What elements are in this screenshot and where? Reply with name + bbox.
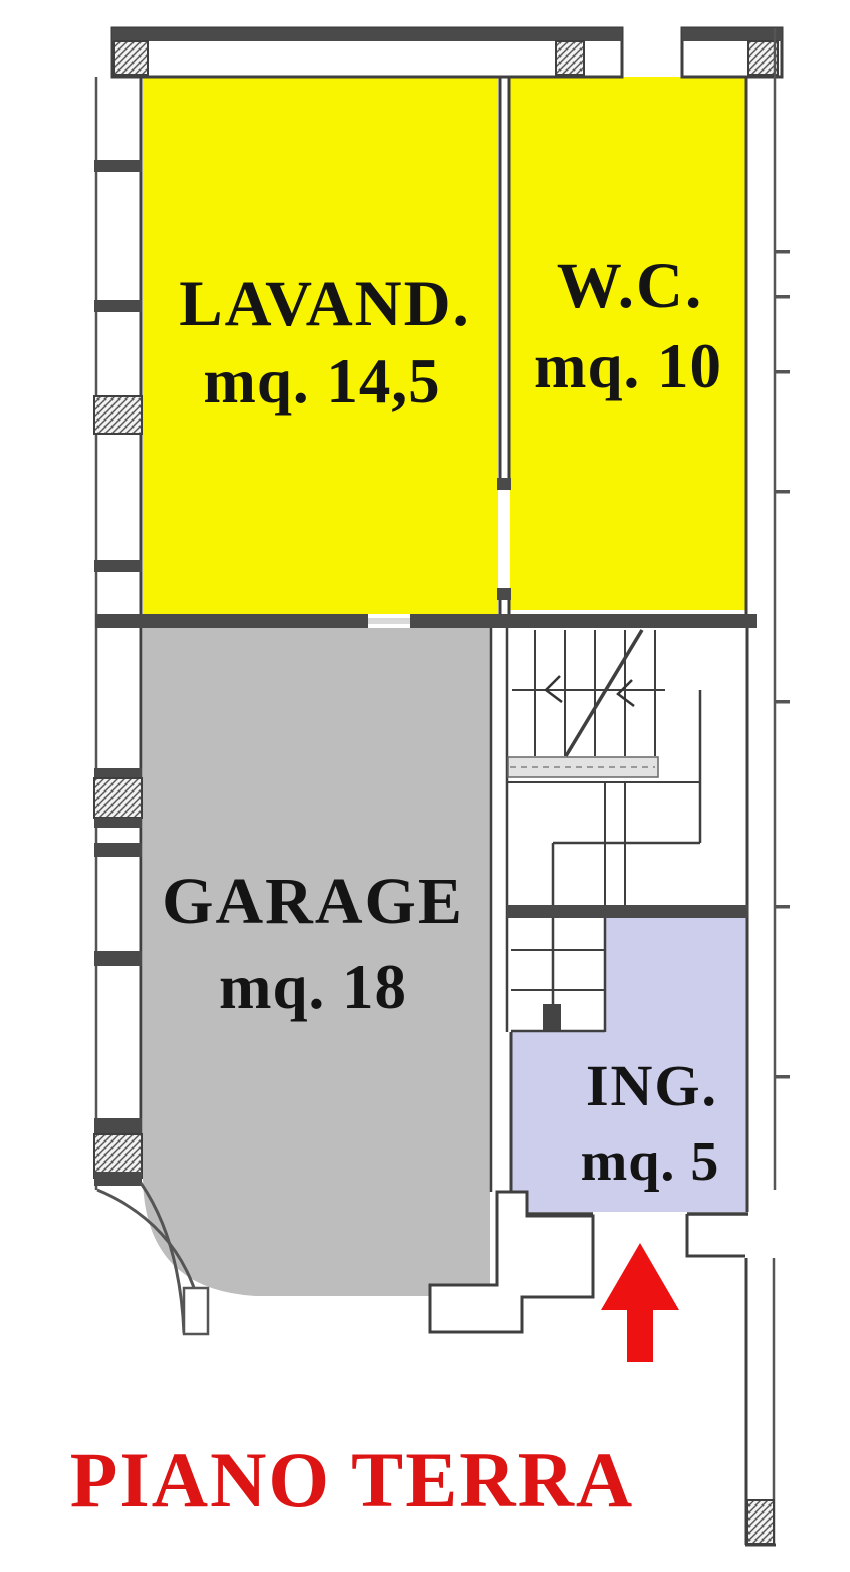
wall-pier [94,768,142,778]
mid-wall [95,614,757,628]
wall-pier [94,818,142,828]
wall-pier [114,41,148,75]
wall-pier [94,1118,142,1134]
floor-title: PIANO TERRA [70,1436,634,1523]
top-walls [112,28,782,77]
wall-pier [94,300,142,312]
divider-wall [497,77,511,614]
room-ingresso-label: ING. [586,1053,718,1118]
room-wc-label: W.C. [557,250,703,322]
floor-plan-drawing: LAVAND. mq. 14,5 W.C. mq. 10 GARAGE mq. … [0,0,850,1572]
wall-pier [94,778,142,818]
wall-pier [94,951,142,966]
room-garage-area: mq. 18 [219,952,407,1022]
door-leaf [184,1288,208,1334]
wall-pier [94,160,142,172]
floor-plan-page: LAVAND. mq. 14,5 W.C. mq. 10 GARAGE mq. … [0,0,850,1572]
wall-pier [747,1500,774,1544]
room-garage-label: GARAGE [162,865,464,938]
entrance-arrow-icon [601,1243,679,1362]
room-lavanderia-area: mq. 14,5 [203,346,440,416]
stair-break-line [566,630,642,756]
wall-pier [94,560,142,572]
room-ingresso-area: mq. 5 [581,1131,720,1193]
wall-pier [94,1134,142,1178]
wall-pier [748,41,778,75]
wall-pier [94,396,142,434]
door-jamb [687,1214,745,1256]
wall-pier [94,1172,142,1186]
wall-segment [112,28,622,41]
wall-segment [682,28,782,41]
newel-post [543,1004,561,1030]
wall-pier [556,41,584,75]
room-lavanderia-label: LAVAND. [179,268,471,340]
room-wc-area: mq. 10 [534,331,722,401]
left-wall [94,77,142,1190]
wall-pier [94,843,142,857]
